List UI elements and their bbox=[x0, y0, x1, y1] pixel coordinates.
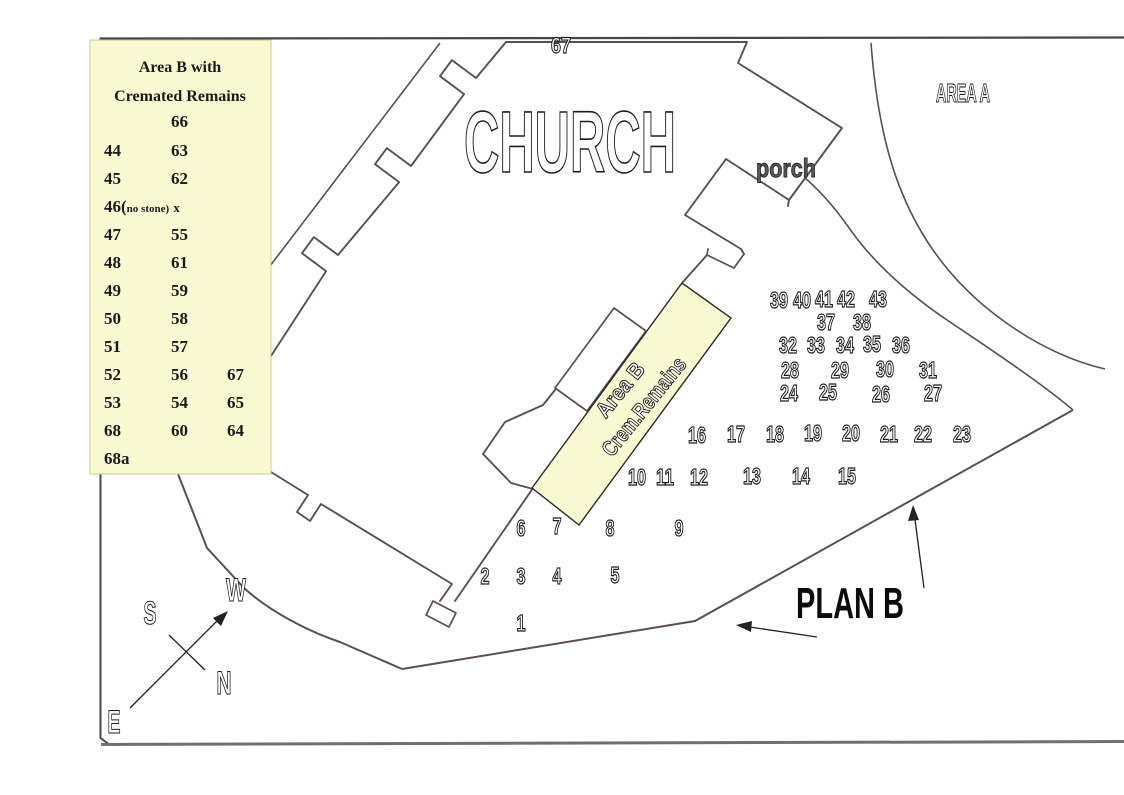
svg-text:68a: 68a bbox=[104, 449, 130, 468]
svg-text:44: 44 bbox=[104, 141, 122, 160]
svg-text:64: 64 bbox=[227, 421, 245, 440]
svg-text:17: 17 bbox=[727, 421, 745, 447]
svg-text:16: 16 bbox=[688, 422, 706, 448]
svg-text:48: 48 bbox=[104, 253, 121, 272]
svg-text:61: 61 bbox=[171, 253, 188, 272]
svg-text:39: 39 bbox=[770, 287, 788, 313]
svg-text:45: 45 bbox=[104, 169, 121, 188]
svg-text:15: 15 bbox=[838, 463, 856, 489]
svg-text:57: 57 bbox=[171, 337, 189, 356]
svg-text:65: 65 bbox=[227, 393, 244, 412]
svg-text:N: N bbox=[217, 665, 232, 701]
svg-text:54: 54 bbox=[171, 393, 189, 412]
svg-text:W: W bbox=[226, 572, 247, 608]
svg-text:5: 5 bbox=[611, 562, 620, 588]
svg-text:55: 55 bbox=[171, 225, 188, 244]
svg-text:47: 47 bbox=[104, 225, 122, 244]
svg-text:9: 9 bbox=[675, 515, 684, 541]
svg-text:62: 62 bbox=[171, 169, 188, 188]
svg-text:2: 2 bbox=[481, 563, 490, 589]
svg-text:49: 49 bbox=[104, 281, 121, 300]
svg-text:3: 3 bbox=[517, 563, 526, 589]
svg-text:30: 30 bbox=[876, 356, 894, 382]
svg-text:13: 13 bbox=[743, 463, 761, 489]
svg-text:52: 52 bbox=[104, 365, 121, 384]
svg-text:20: 20 bbox=[842, 420, 860, 446]
svg-text:66: 66 bbox=[171, 112, 188, 131]
svg-text:E: E bbox=[108, 704, 121, 740]
svg-text:AREA A: AREA A bbox=[936, 78, 990, 108]
svg-text:25: 25 bbox=[819, 379, 837, 405]
svg-text:8: 8 bbox=[606, 515, 615, 541]
svg-text:59: 59 bbox=[171, 281, 188, 300]
svg-text:7: 7 bbox=[553, 513, 562, 539]
svg-text:24: 24 bbox=[780, 380, 798, 406]
svg-text:35: 35 bbox=[863, 331, 881, 357]
svg-text:58: 58 bbox=[171, 309, 188, 328]
svg-text:1: 1 bbox=[517, 610, 526, 636]
svg-text:18: 18 bbox=[766, 421, 784, 447]
svg-text:S: S bbox=[144, 595, 157, 631]
svg-text:PLAN B: PLAN B bbox=[796, 579, 904, 628]
svg-text:21: 21 bbox=[880, 421, 898, 447]
svg-text:67: 67 bbox=[551, 33, 571, 58]
svg-text:22: 22 bbox=[914, 421, 932, 447]
svg-text:36: 36 bbox=[892, 332, 910, 358]
svg-text:porch: porch bbox=[756, 153, 816, 183]
svg-text:34: 34 bbox=[836, 332, 854, 358]
svg-text:56: 56 bbox=[171, 365, 188, 384]
svg-text:Cremated Remains: Cremated Remains bbox=[114, 88, 246, 105]
svg-text:26: 26 bbox=[872, 381, 890, 407]
svg-text:43: 43 bbox=[869, 286, 887, 312]
svg-text:68: 68 bbox=[104, 421, 121, 440]
svg-text:32: 32 bbox=[779, 332, 797, 358]
svg-text:6: 6 bbox=[517, 515, 526, 541]
svg-text:63: 63 bbox=[171, 141, 188, 160]
svg-text:27: 27 bbox=[924, 380, 942, 406]
svg-text:40: 40 bbox=[793, 287, 811, 313]
svg-text:12: 12 bbox=[690, 464, 708, 490]
svg-text:11: 11 bbox=[656, 464, 674, 490]
svg-text:19: 19 bbox=[804, 420, 822, 446]
svg-text:60: 60 bbox=[171, 421, 188, 440]
svg-text:67: 67 bbox=[227, 365, 245, 384]
svg-text:10: 10 bbox=[628, 464, 646, 490]
svg-text:51: 51 bbox=[104, 337, 121, 356]
svg-text:50: 50 bbox=[104, 309, 121, 328]
svg-text:4: 4 bbox=[553, 563, 562, 589]
svg-text:23: 23 bbox=[953, 421, 971, 447]
svg-text:33: 33 bbox=[807, 332, 825, 358]
svg-text:Area B with: Area B with bbox=[139, 59, 221, 76]
svg-text:14: 14 bbox=[792, 463, 810, 489]
svg-text:53: 53 bbox=[104, 393, 121, 412]
svg-text:CHURCH: CHURCH bbox=[464, 94, 676, 191]
